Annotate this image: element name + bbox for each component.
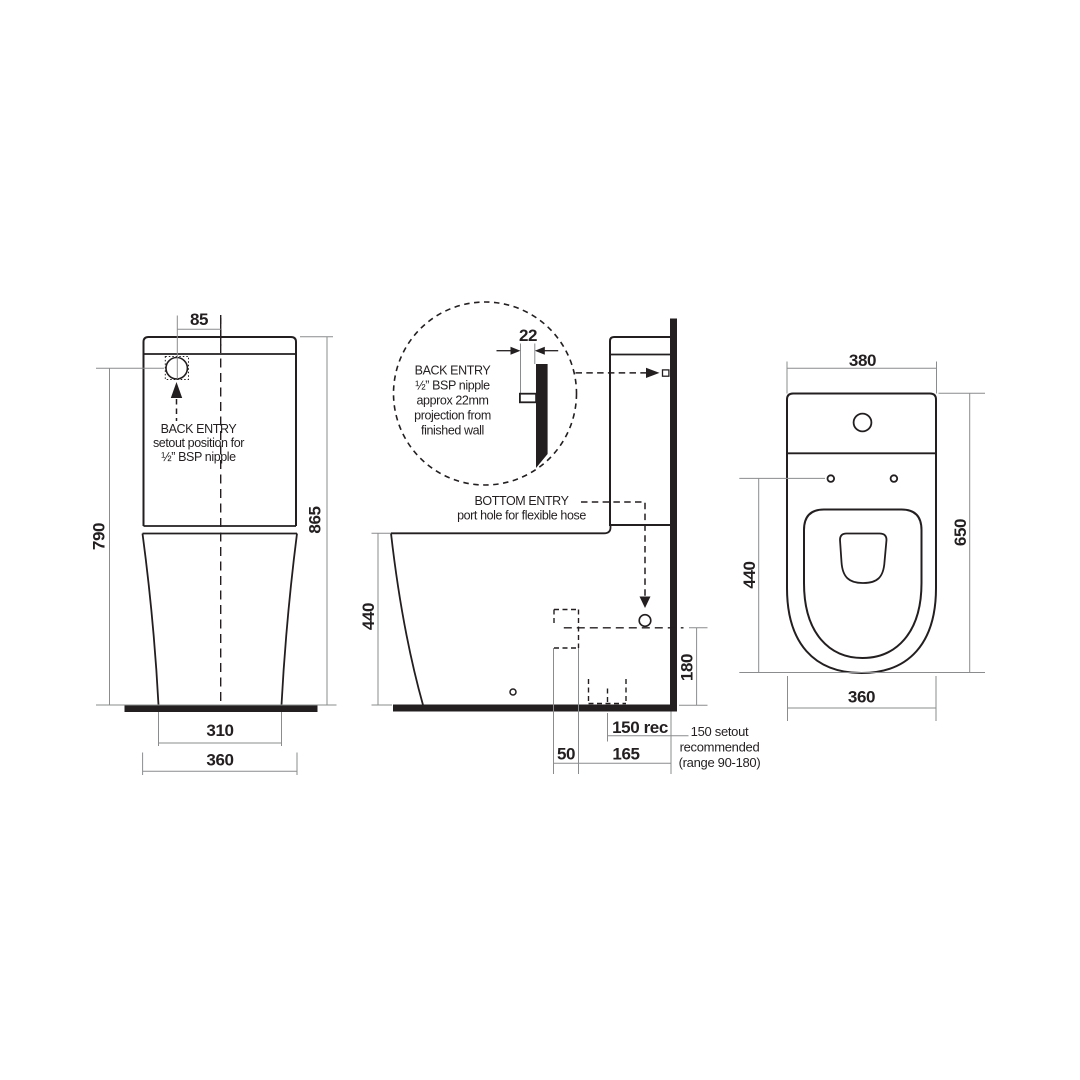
svg-text:BOTTOM ENTRY: BOTTOM ENTRY xyxy=(474,494,569,508)
svg-text:port hole for flexible hose: port hole for flexible hose xyxy=(457,509,586,523)
svg-text:BACK ENTRY: BACK ENTRY xyxy=(161,422,238,436)
svg-text:finished wall: finished wall xyxy=(421,424,484,438)
svg-text:150 setout: 150 setout xyxy=(691,724,749,739)
svg-text:165: 165 xyxy=(612,745,639,764)
svg-text:180: 180 xyxy=(678,654,697,681)
svg-text:22: 22 xyxy=(519,326,537,345)
svg-text:310: 310 xyxy=(206,721,233,740)
svg-text:recommended: recommended xyxy=(680,740,760,755)
svg-text:setout position for: setout position for xyxy=(153,436,244,450)
svg-text:650: 650 xyxy=(951,519,970,546)
svg-text:(range 90-180): (range 90-180) xyxy=(679,755,761,770)
svg-text:865: 865 xyxy=(306,506,325,533)
svg-text:approx 22mm: approx 22mm xyxy=(416,394,488,408)
svg-text:790: 790 xyxy=(90,523,109,550)
svg-text:440: 440 xyxy=(359,603,378,630)
svg-text:50: 50 xyxy=(557,745,575,764)
svg-text:projection from: projection from xyxy=(414,409,491,423)
svg-text:360: 360 xyxy=(848,688,875,707)
svg-text:½” BSP nipple: ½” BSP nipple xyxy=(161,450,236,464)
svg-text:½” BSP nipple: ½” BSP nipple xyxy=(415,379,490,393)
svg-text:85: 85 xyxy=(190,310,208,329)
svg-text:BACK ENTRY: BACK ENTRY xyxy=(415,364,492,378)
svg-text:360: 360 xyxy=(206,751,233,770)
svg-text:150 rec: 150 rec xyxy=(612,718,668,737)
svg-text:440: 440 xyxy=(740,561,759,588)
svg-text:380: 380 xyxy=(849,351,876,370)
